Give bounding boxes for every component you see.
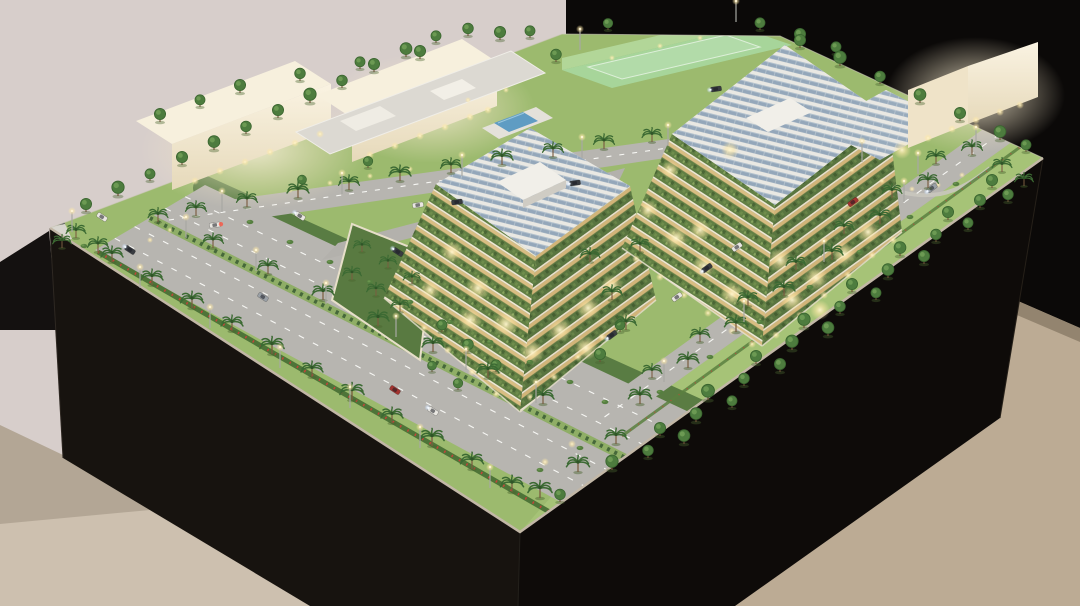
bush [577,446,584,450]
ground-light [609,55,615,61]
bush [247,220,254,224]
round-tree [931,229,942,244]
ground-light [241,158,249,166]
ground-light [948,125,956,133]
round-tree [453,378,463,392]
round-tree [355,57,365,71]
bush [527,360,534,364]
bush [447,320,454,324]
round-tree [846,278,857,294]
round-tree [428,361,437,374]
ground-light [697,35,703,41]
round-tree [525,26,535,40]
round-tree [241,121,252,136]
round-tree [882,264,894,281]
ground-light [147,237,153,243]
round-tree [963,218,973,232]
ground-light [503,87,509,93]
ground-light [768,248,792,272]
ground-light [632,255,640,263]
ground-light [576,296,600,320]
ground-light [444,346,452,354]
round-tree [894,242,906,259]
ground-light [216,167,224,175]
ground-light [191,177,199,185]
ground-light [704,309,712,317]
scene-svg [0,0,1080,606]
ground-light [458,308,482,332]
round-tree [437,320,447,334]
ground-light [574,336,598,360]
round-tree [606,455,618,472]
ground-light [868,251,876,259]
bush [657,390,664,394]
round-tree [463,23,474,38]
ground-light [492,390,500,398]
ground-light [661,161,679,179]
round-tree [431,31,441,45]
round-tree [702,384,715,402]
ground-light [996,108,1004,116]
ground-light [266,148,274,156]
ground-light [972,116,980,124]
ground-light [391,142,399,150]
round-tree [112,181,124,198]
round-tree [822,322,834,339]
round-tree [494,26,505,42]
ground-light [721,141,739,159]
ground-light [291,139,299,147]
round-tree [337,75,348,90]
bush [757,320,764,324]
round-tree [234,79,245,95]
round-tree [994,126,1006,143]
round-tree [414,45,425,61]
photo-architectural-model [0,0,1080,606]
round-tree [974,194,985,210]
ground-light [484,106,492,114]
ground-light [1016,101,1024,109]
ground-light [466,276,490,300]
round-tree [176,151,187,167]
bush [953,182,960,186]
ground-light [844,271,852,279]
ground-light [656,273,664,281]
bush [857,250,864,254]
ground-light [664,226,688,250]
ground-light [810,300,830,320]
ground-light [893,141,911,159]
ground-light [959,172,965,178]
ground-light [832,242,856,266]
round-tree [603,18,613,32]
bush [707,355,714,359]
ground-light [466,113,474,121]
ground-light [548,318,572,342]
ground-light [367,173,373,179]
ground-light [909,186,915,192]
bush [367,280,374,284]
round-tree [750,350,761,366]
ground-light [879,178,885,184]
ground-light [638,200,658,220]
round-tree [727,396,737,410]
round-tree [834,51,846,68]
ground-light [441,241,463,263]
round-tree [875,71,886,86]
round-tree [154,108,165,124]
ground-light [772,331,780,339]
round-tree [774,358,785,374]
bush [327,260,334,264]
round-tree [363,156,373,170]
ground-light [820,291,828,299]
round-tree [678,430,690,447]
ground-light [924,134,932,142]
round-tree [400,43,412,60]
round-tree [555,489,566,504]
round-tree [195,95,205,109]
ground-light [849,167,855,173]
ground-light [689,219,711,241]
round-tree [942,206,953,222]
round-tree [786,335,798,352]
round-tree [594,348,605,364]
round-tree [986,174,997,190]
ground-light [541,458,549,466]
ground-light [550,373,558,381]
round-tree [1003,189,1014,204]
ground-light [468,368,476,376]
ground-light [441,123,449,131]
ground-light [327,180,333,186]
ground-light [568,440,576,448]
round-tree [272,104,283,120]
round-tree [755,18,765,32]
ground-light [420,280,440,300]
round-tree [798,313,810,330]
round-tree [654,422,665,438]
bush [807,285,814,289]
ground-light [748,340,756,348]
round-tree [918,250,929,266]
ground-light [316,130,324,138]
round-tree [145,169,155,183]
round-tree [304,88,316,105]
bush [81,244,88,248]
round-tree [835,301,846,316]
round-tree [794,34,805,50]
round-tree [208,136,220,153]
ground-light [657,43,663,49]
ground-light [493,311,519,337]
bush [907,215,914,219]
ground-light [167,227,173,233]
ground-light [420,324,428,332]
round-tree [643,445,654,460]
round-tree [690,408,702,425]
round-tree [739,373,750,388]
bush [602,400,609,404]
bush [487,340,494,344]
round-tree [914,89,926,106]
round-tree [368,58,379,74]
ground-light [465,97,471,103]
round-tree [551,49,562,64]
ground-light [527,146,533,152]
bush [537,468,544,472]
round-tree [871,288,881,302]
round-tree [80,198,91,214]
round-tree [295,68,306,83]
round-tree [954,107,965,123]
ground-light [416,132,424,140]
round-tree [1021,140,1031,154]
bush [287,240,294,244]
bush [567,380,574,384]
ground-light [889,236,897,244]
